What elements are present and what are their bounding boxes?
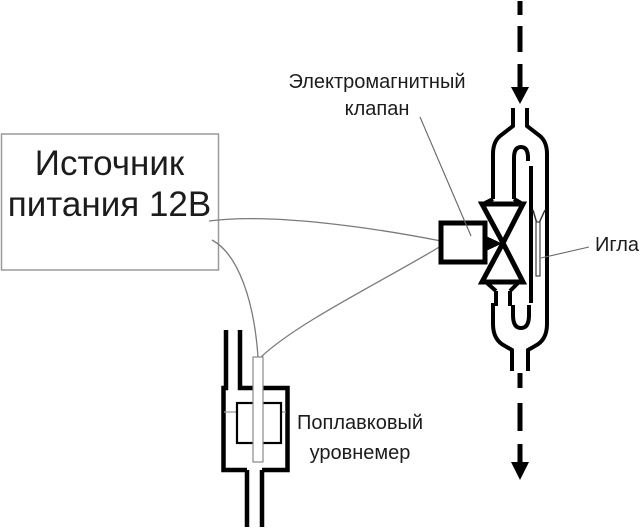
flow-in-arrow (511, 1, 529, 104)
power-supply-label: Источник питания 12В (1, 134, 218, 270)
wire-float-to-solenoid (261, 246, 441, 357)
valve-outlet-stub (496, 291, 510, 306)
y-inner-cut (513, 305, 529, 328)
power-supply-label-line2: питания 12В (1, 184, 218, 225)
solenoid-valve-label-line1: Электромагнитный (257, 69, 497, 96)
solenoid-valve-label: Электромагнитный клапан (257, 69, 497, 123)
solenoid-coil-box (441, 223, 485, 262)
float-gauge-inlet-and-left-wall (224, 330, 248, 470)
needle (536, 222, 540, 276)
needle-branch (533, 210, 545, 276)
y-junction (493, 303, 547, 371)
flow-in-arrowhead (511, 87, 529, 104)
float-gauge-label-line1: Поплавковый (280, 408, 440, 438)
float-gauge-label-line2: уровнемер (280, 438, 440, 468)
flow-out-arrow (511, 373, 529, 480)
solenoid-label-leader (420, 117, 471, 236)
float-rod (253, 357, 263, 462)
float-gauge-label: Поплавковый уровнемер (280, 408, 440, 468)
solenoid-valve-symbol (482, 199, 523, 306)
solenoid-valve-label-line2: клапан (257, 96, 497, 123)
float-gauge-outlet-pipe (247, 470, 262, 527)
y-outer-left (493, 303, 512, 371)
schematic-diagram: Источник питания 12В Электромагнитный кл… (0, 0, 640, 529)
wires (209, 219, 441, 357)
wire-power-to-solenoid (209, 219, 441, 241)
power-supply-label-line1: Источник (1, 143, 218, 184)
flow-out-arrowhead (511, 462, 529, 480)
needle-label: Игла (595, 234, 640, 256)
float-gauge (224, 330, 288, 527)
arch-inner-wall (514, 147, 528, 199)
needle-seat-funnel (533, 210, 545, 222)
